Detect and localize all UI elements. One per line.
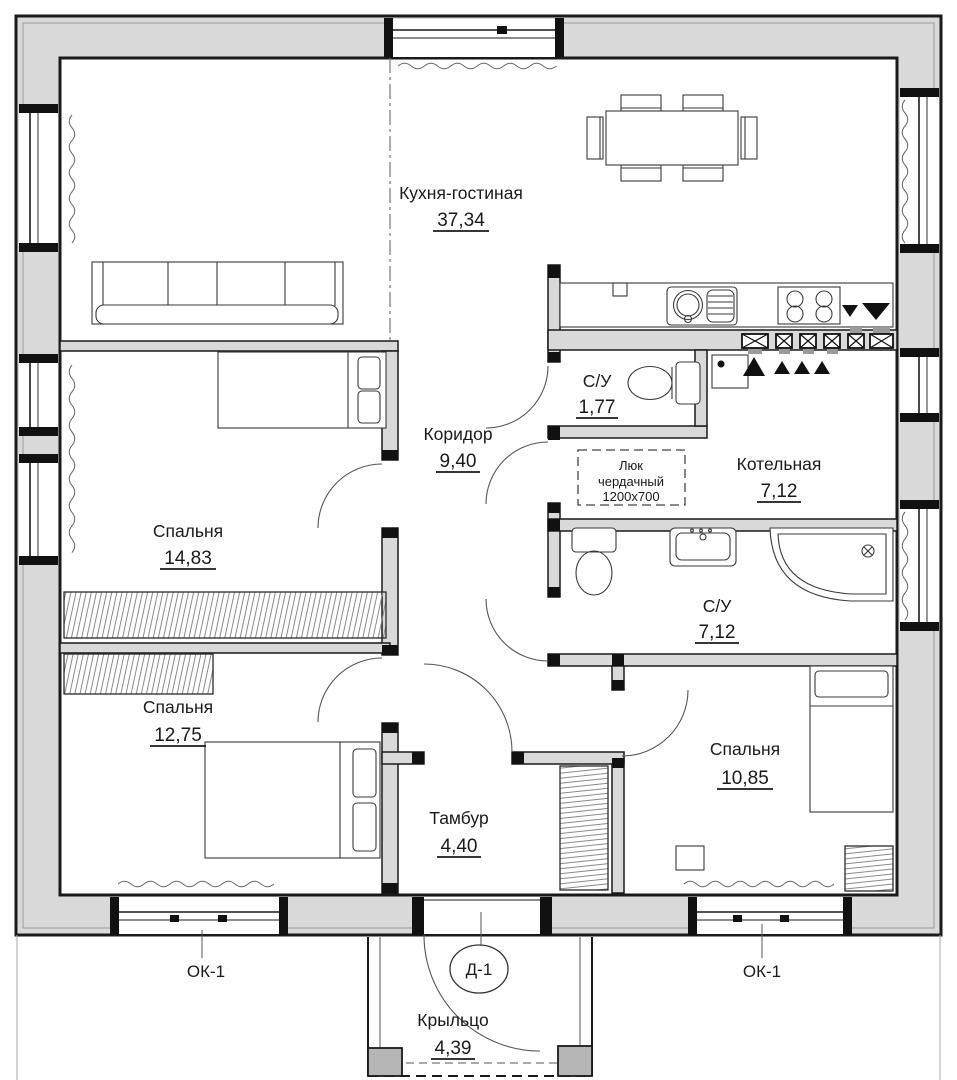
window-left-bedroom1-lower (19, 454, 58, 565)
window-mark-left: ОК-1 (187, 930, 225, 981)
window-right-boiler (900, 348, 939, 422)
wardrobe-bedroom1 (64, 592, 386, 638)
window-left-bedroom1-upper (19, 354, 58, 436)
floor-plan-page: Д-1 ОК-1 ОК-1 Кухня-гостиная 37,34 Спаль… (0, 0, 957, 1080)
bed-bedroom1 (218, 352, 386, 428)
room-area-wc-small: 1,77 (579, 397, 616, 418)
room-label-bedroom3: Спальня (710, 739, 780, 759)
room-label-bedroom1: Спальня (153, 521, 223, 541)
wardrobe-bedroom2 (64, 654, 213, 694)
floor-plan-svg: Д-1 ОК-1 ОК-1 Кухня-гостиная 37,34 Спаль… (0, 0, 957, 1080)
room-label-porch: Крыльцо (417, 1010, 488, 1030)
window-mark-right-label: ОК-1 (743, 962, 781, 981)
wardrobe-bedroom3 (845, 846, 893, 891)
room-label-kitchen-living: Кухня-гостиная (399, 183, 523, 203)
bed-bedroom3 (810, 666, 893, 812)
window-top-kitchen (384, 18, 564, 57)
room-area-bedroom2: 12,75 (154, 725, 202, 746)
stove-icon (778, 287, 840, 324)
room-label-bedroom2: Спальня (143, 697, 213, 717)
nightstand-bedroom3 (676, 846, 704, 870)
window-left-living (19, 104, 58, 252)
room-area-vestibule: 4,40 (441, 836, 478, 857)
toilet-icon (572, 528, 616, 595)
room-label-wc-small: С/У (583, 371, 613, 391)
room-area-bedroom1: 14,83 (164, 548, 212, 569)
attic-hatch-line1: Люк (619, 458, 643, 473)
kitchen-counter (560, 283, 893, 327)
entrance-door-opening (412, 897, 552, 935)
room-area-bedroom3: 10,85 (721, 768, 769, 789)
attic-hatch-line3: 1200x700 (602, 489, 659, 504)
room-area-kitchen-living: 37,34 (437, 210, 485, 231)
door-mark-label: Д-1 (466, 960, 493, 979)
sofa (92, 262, 343, 324)
room-area-porch: 4,39 (435, 1038, 472, 1059)
room-label-bathroom: С/У (703, 596, 733, 616)
window-bottom-bedroom3 (688, 897, 852, 935)
room-label-vestibule: Тамбур (429, 808, 488, 828)
bed-bedroom2 (205, 742, 380, 858)
room-area-bathroom: 7,12 (699, 622, 736, 643)
window-mark-left-label: ОК-1 (187, 962, 225, 981)
room-label-corridor: Коридор (423, 424, 492, 444)
room-label-boiler: Котельная (737, 454, 822, 474)
room-area-corridor: 9,40 (440, 451, 477, 472)
room-area-boiler: 7,12 (761, 481, 798, 502)
attic-hatch-line2: чердачный (598, 474, 664, 489)
closet-vestibule (560, 766, 608, 890)
kitchen-sink-icon (667, 287, 737, 325)
washbasin-icon (670, 528, 736, 566)
window-bottom-bedroom2 (110, 897, 288, 935)
